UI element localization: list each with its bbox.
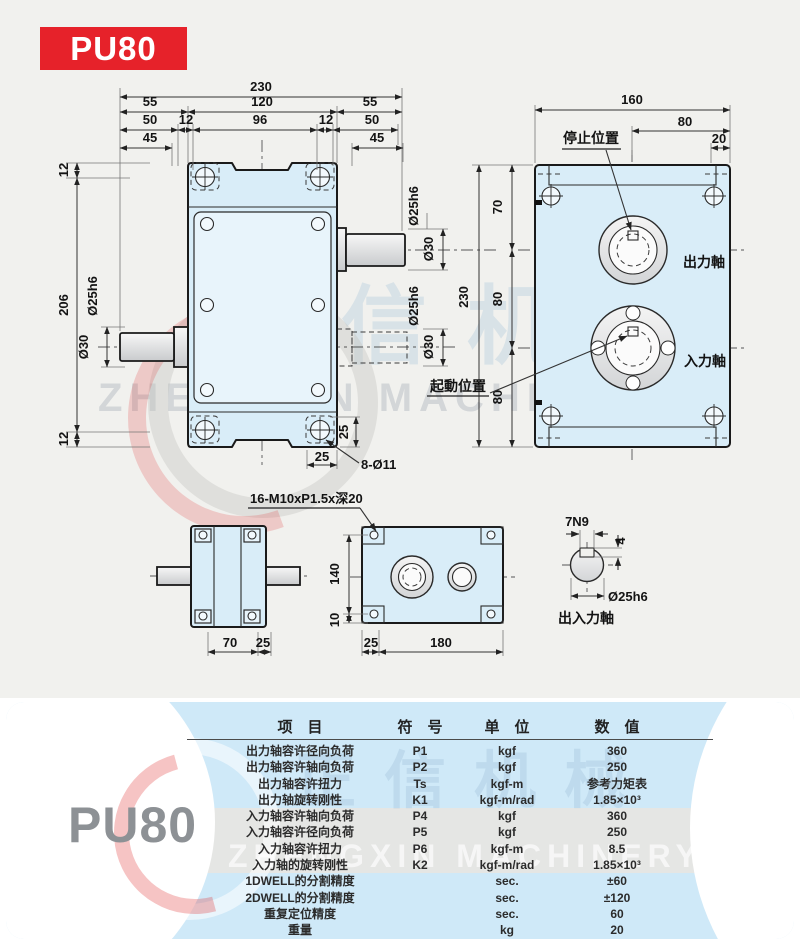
table-row: 重量kg20 xyxy=(185,922,715,938)
table-row: 重复定位精度sec.60 xyxy=(185,906,715,922)
table-row: 出力轴旋转刚性K1kgf-m/rad1.85×10³ xyxy=(185,792,715,808)
label-start-position: 起動位置 xyxy=(429,378,486,394)
dim-key-depth: 4 xyxy=(613,537,628,545)
header-value: 数 值 xyxy=(594,716,639,737)
callout-8-holes: 8-Ø11 xyxy=(361,457,396,472)
table-row: 2DWELL的分割精度sec.±120 xyxy=(185,890,715,906)
dim-shaft-dia: Ø25h6 xyxy=(608,589,648,604)
dia-left-25h6: Ø25h6 xyxy=(85,276,100,316)
dim-front-50r: 50 xyxy=(365,112,379,127)
dim-front-96: 96 xyxy=(253,112,267,127)
label-io-shaft: 出入力軸 xyxy=(558,610,614,626)
dim-front-12bot: 12 xyxy=(56,432,71,446)
dim-side-20: 20 xyxy=(712,131,726,146)
bottom-left-view: 70 25 xyxy=(150,526,308,656)
dim-front-12l: 12 xyxy=(179,112,193,127)
shaft-detail: 7N9 4 Ø25h6 出入力軸 xyxy=(558,514,648,626)
dim-front-25v: 25 xyxy=(336,425,351,439)
side-view: 160 80 20 230 70 80 80 停止位置 起動位置 出力軸 入力軸 xyxy=(427,92,748,460)
table-row: 出力轴容许径向负荷P1kgf360 xyxy=(185,743,715,759)
dim-front-25h: 25 xyxy=(315,449,329,464)
dim-side-80a: 80 xyxy=(490,292,505,306)
dim-front-12r: 12 xyxy=(319,112,333,127)
spec-table: 项 目 符 号 单 位 数 值 出力轴容许径向负荷P1kgf360 出力轴容许轴… xyxy=(185,712,715,939)
dim-key-7n9: 7N9 xyxy=(565,514,589,529)
card-model-label: PU80 xyxy=(68,796,197,854)
dim-bm-140: 140 xyxy=(327,563,342,585)
dia-left-30: Ø30 xyxy=(76,335,91,360)
dia-in-25h6: Ø25h6 xyxy=(406,286,421,326)
dim-front-50l: 50 xyxy=(143,112,157,127)
alt-shaft-dashed xyxy=(337,329,352,366)
header-unit: 单 位 xyxy=(484,716,529,737)
dia-out-25h6: Ø25h6 xyxy=(406,186,421,226)
model-badge: PU80 xyxy=(40,27,187,70)
dim-side-80: 80 xyxy=(678,114,692,129)
dim-side-70: 70 xyxy=(490,200,505,214)
label-stop-position: 停止位置 xyxy=(563,130,619,146)
technical-drawing: 230 55 120 55 50 12 96 12 50 45 45 12 20… xyxy=(0,0,800,698)
header-item: 项 目 xyxy=(277,716,322,737)
dim-front-12top: 12 xyxy=(56,163,71,177)
table-row: 出力轴容许扭力Tskgf-m参考力矩表 xyxy=(185,776,715,792)
dim-front-45l: 45 xyxy=(143,130,157,145)
dim-side-230: 230 xyxy=(456,286,471,308)
dim-bl-25: 25 xyxy=(256,635,270,650)
dia-in-30: Ø30 xyxy=(421,335,436,360)
callout-tapped-holes: 16-M10xP1.5x深20 xyxy=(250,491,363,506)
spec-card: 正信机械 ZHENGXIN MACHINERY PU80 项 目 符 号 单 位… xyxy=(6,702,794,939)
header-divider xyxy=(187,739,713,740)
dim-side-160: 160 xyxy=(621,92,643,107)
label-input-shaft: 入力軸 xyxy=(684,353,726,369)
dim-bm-180: 180 xyxy=(430,635,452,650)
dim-bl-70: 70 xyxy=(223,635,237,650)
dim-front-45r: 45 xyxy=(370,130,384,145)
dim-front-total: 230 xyxy=(250,79,272,94)
dim-bm-25: 25 xyxy=(364,635,378,650)
table-row: 入力轴容许扭力P6kgf-m8.5 xyxy=(185,841,715,857)
dim-front-206: 206 xyxy=(56,294,71,316)
spec-table-rows: 出力轴容许径向负荷P1kgf360 出力轴容许轴向负荷P2kgf250 出力轴容… xyxy=(185,743,715,939)
input-shaft-left xyxy=(174,327,188,367)
front-view: 230 55 120 55 50 12 96 12 50 45 45 12 20… xyxy=(56,79,497,472)
dim-front-120: 120 xyxy=(251,94,273,109)
spec-table-header: 项 目 符 号 单 位 数 值 xyxy=(185,712,715,741)
output-shaft-right xyxy=(337,228,346,271)
table-row: 1DWELL的分割精度sec.±60 xyxy=(185,873,715,889)
table-row: 入力轴的旋转刚性K2kgf-m/rad1.85×10³ xyxy=(185,857,715,873)
datasheet-page: 正信机械 ZHENGXIN MACHINERY PU80 xyxy=(0,0,800,946)
dia-out-30: Ø30 xyxy=(421,237,436,262)
table-row: 入力轴容许径向负荷P5kgf250 xyxy=(185,824,715,840)
keyway xyxy=(580,548,594,557)
label-output-shaft: 出力軸 xyxy=(683,254,725,270)
table-row: 出力轴容许轴向负荷P2kgf250 xyxy=(185,759,715,775)
header-symbol: 符 号 xyxy=(397,716,442,737)
dim-bm-10: 10 xyxy=(327,613,342,627)
dim-front-55r: 55 xyxy=(363,94,377,109)
drawing-section: 正信机械 ZHENGXIN MACHINERY PU80 xyxy=(0,0,800,698)
dim-front-55l: 55 xyxy=(143,94,157,109)
table-row: 入力轴容许轴向负荷P4kgf360 xyxy=(185,808,715,824)
